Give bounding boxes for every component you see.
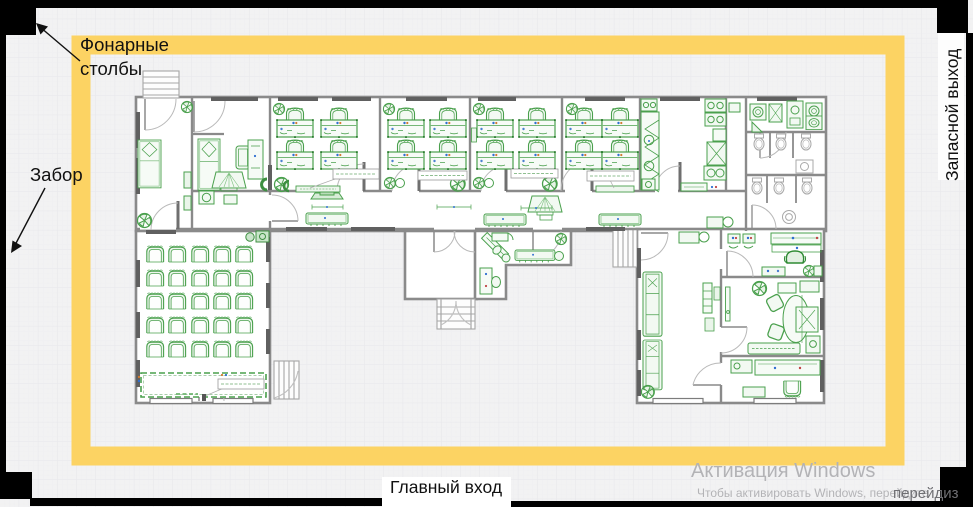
svg-text:Главный вход: Главный вход: [390, 477, 502, 497]
svg-text:Запасной выход: Запасной выход: [942, 49, 962, 181]
svg-text:Забор: Забор: [30, 164, 83, 185]
svg-text:перейдиз: перейдиз: [893, 485, 959, 502]
svg-text:столбы: столбы: [80, 58, 142, 79]
svg-text:Фонарные: Фонарные: [80, 34, 169, 55]
svg-text:Активация Windows: Активация Windows: [691, 460, 875, 482]
